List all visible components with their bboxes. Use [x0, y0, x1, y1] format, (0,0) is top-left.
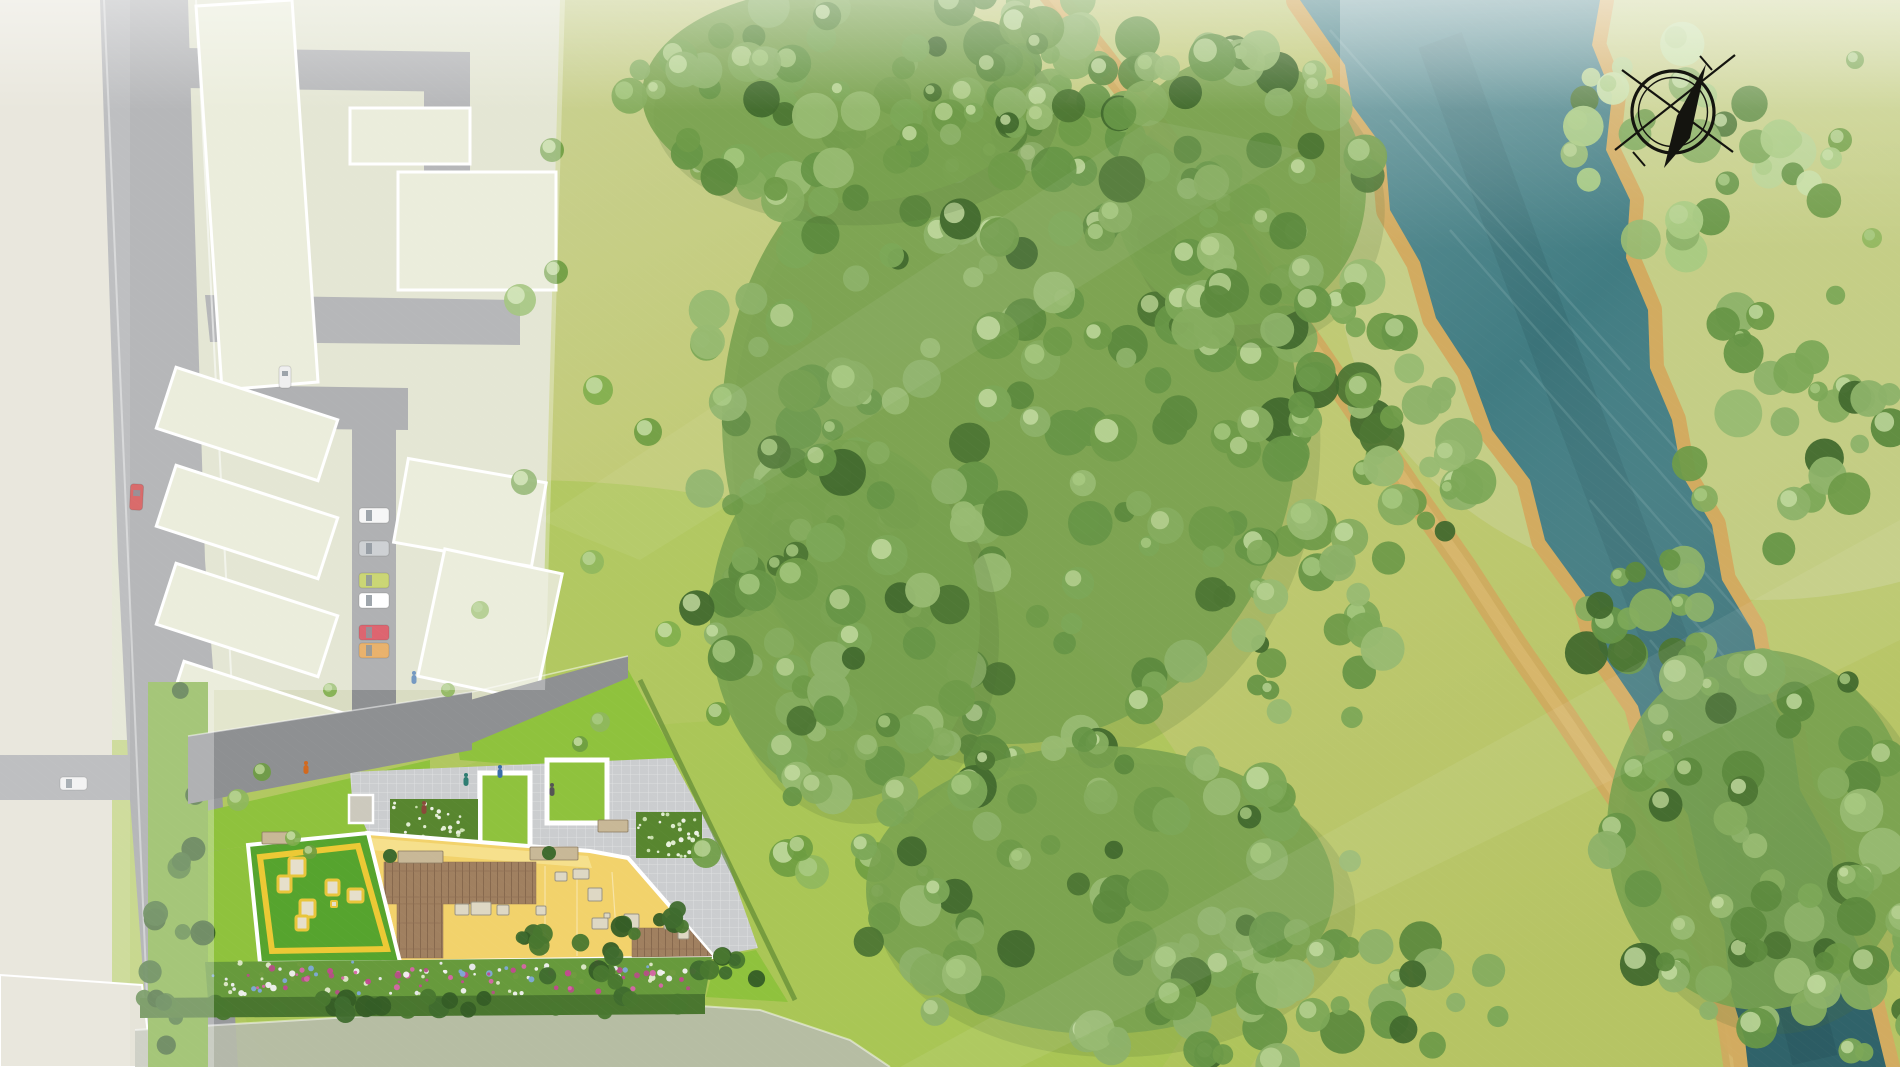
- left-fog: [0, 0, 130, 1067]
- haze-overlays: [0, 0, 1900, 1067]
- top-right-fog: [1340, 0, 1900, 250]
- site-plan-rendering: [0, 0, 1900, 1067]
- masterplan-canvas: [0, 0, 1900, 1067]
